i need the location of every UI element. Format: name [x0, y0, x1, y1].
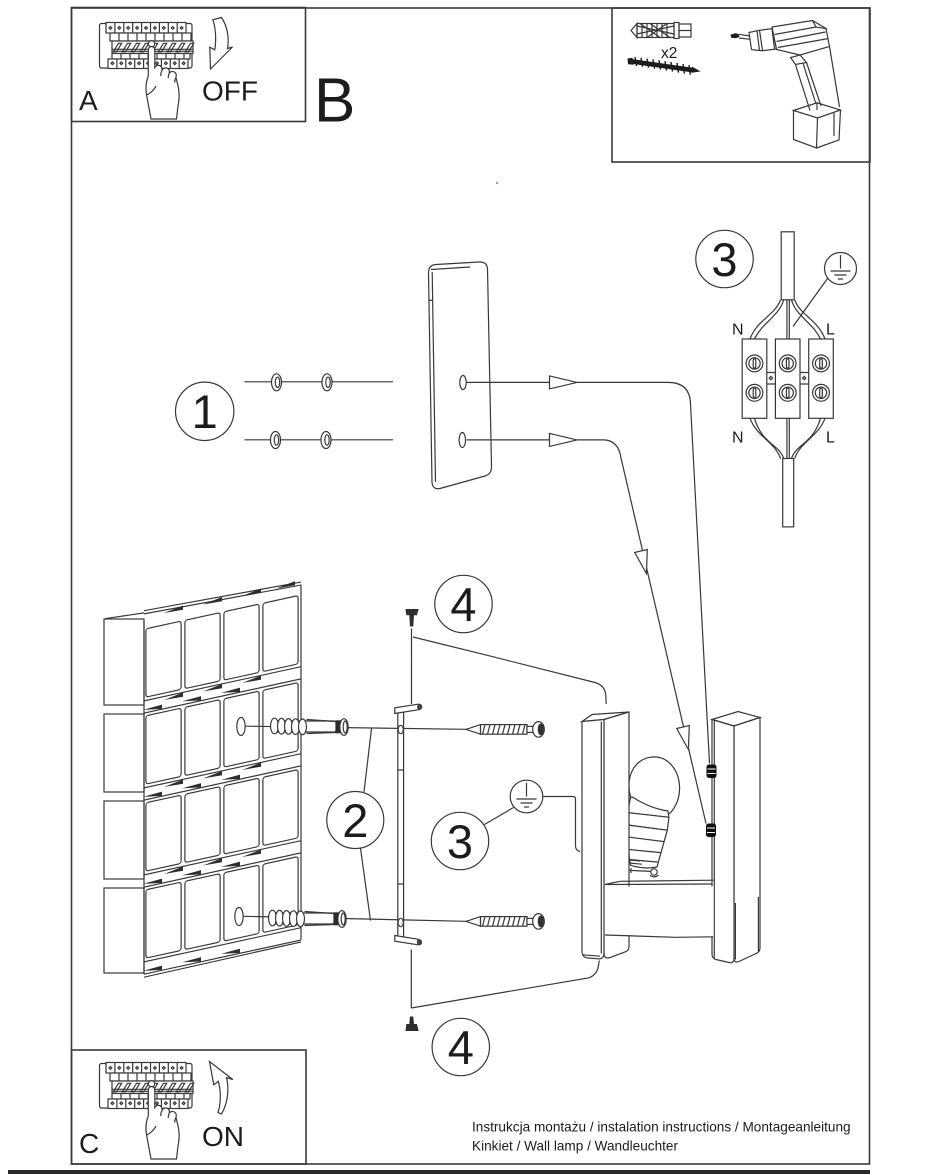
svg-text:3: 3 [447, 815, 473, 868]
svg-text:4: 4 [450, 578, 476, 631]
svg-text:N: N [732, 322, 744, 339]
svg-text:2: 2 [342, 794, 368, 847]
svg-text:OFF: OFF [202, 76, 258, 107]
svg-text:A: A [79, 85, 98, 116]
svg-text:Kinkiet / Wall lamp / Wandleuc: Kinkiet / Wall lamp / Wandleuchter [472, 1139, 678, 1154]
svg-text:3: 3 [711, 233, 737, 286]
svg-text:N: N [732, 430, 744, 447]
svg-text:Instrukcja montażu / instalati: Instrukcja montażu / instalation instruc… [472, 1120, 851, 1135]
svg-text:ON: ON [202, 1121, 244, 1152]
svg-text:4: 4 [448, 1021, 474, 1074]
svg-text:C: C [79, 1128, 99, 1159]
svg-text:1: 1 [192, 385, 218, 438]
svg-text:B: B [314, 67, 355, 136]
svg-text:L: L [826, 322, 835, 339]
svg-text:L: L [826, 430, 835, 447]
svg-text:x2: x2 [661, 45, 677, 62]
